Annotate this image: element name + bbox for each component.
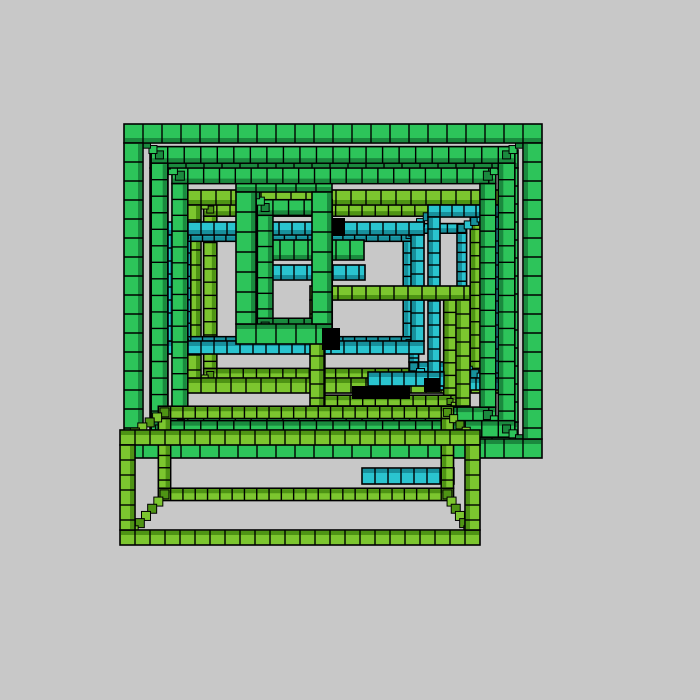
shadow-upper [333,218,345,236]
shadow-lower-left [352,386,410,399]
cyan-beam-bottom [362,468,454,484]
shadow-lower-right [424,378,440,392]
voxel-scene-svg [0,0,700,700]
voxel-scene-container [0,0,700,700]
shadow-center [322,328,340,350]
